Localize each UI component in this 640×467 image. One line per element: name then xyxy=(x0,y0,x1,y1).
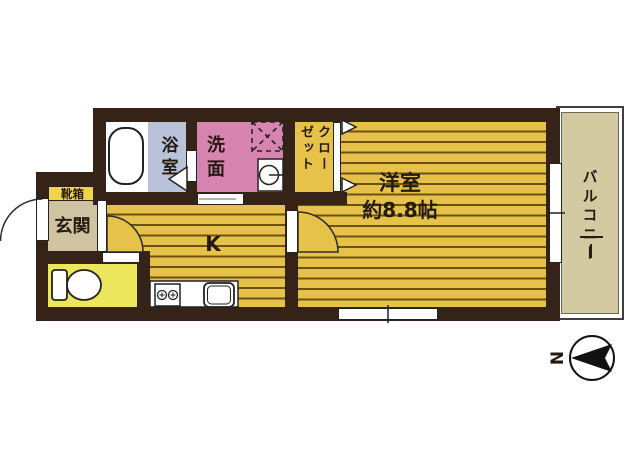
washroom-label: 洗面 xyxy=(202,127,226,191)
washing-machine-icon xyxy=(252,122,283,151)
kitchen-counter xyxy=(150,281,238,307)
closet-label: クローゼット xyxy=(296,125,332,181)
bathtub-icon xyxy=(109,128,143,184)
western-room-label: 洋室 xyxy=(328,170,472,197)
western-room-size-label: 約8.8帖 xyxy=(328,197,472,223)
toilet-icon xyxy=(52,270,101,300)
shoe-box-label: 靴箱 xyxy=(48,186,97,201)
compass-north-label: N xyxy=(547,348,569,368)
stove-icon xyxy=(155,284,180,306)
entrance-label: 玄関 xyxy=(49,213,96,237)
balcony-label: バルコニー xyxy=(580,160,600,272)
hall-door-swing xyxy=(107,216,143,252)
bathroom-label: 浴室 xyxy=(157,127,179,189)
floor-plan: 浴室 洗面 クローゼット 靴箱 玄関 K 洋室 約8.8帖 バルコニー N xyxy=(0,0,640,467)
fixtures-layer xyxy=(0,0,640,467)
kitchen-label: K xyxy=(200,231,226,257)
front-door-swing xyxy=(1,199,43,241)
closet-fold-icon-top xyxy=(342,120,356,134)
sink-icon xyxy=(204,283,234,307)
compass-icon xyxy=(570,336,614,380)
western-room-label-block: 洋室 約8.8帖 xyxy=(328,170,472,226)
washbasin-icon xyxy=(258,159,283,191)
